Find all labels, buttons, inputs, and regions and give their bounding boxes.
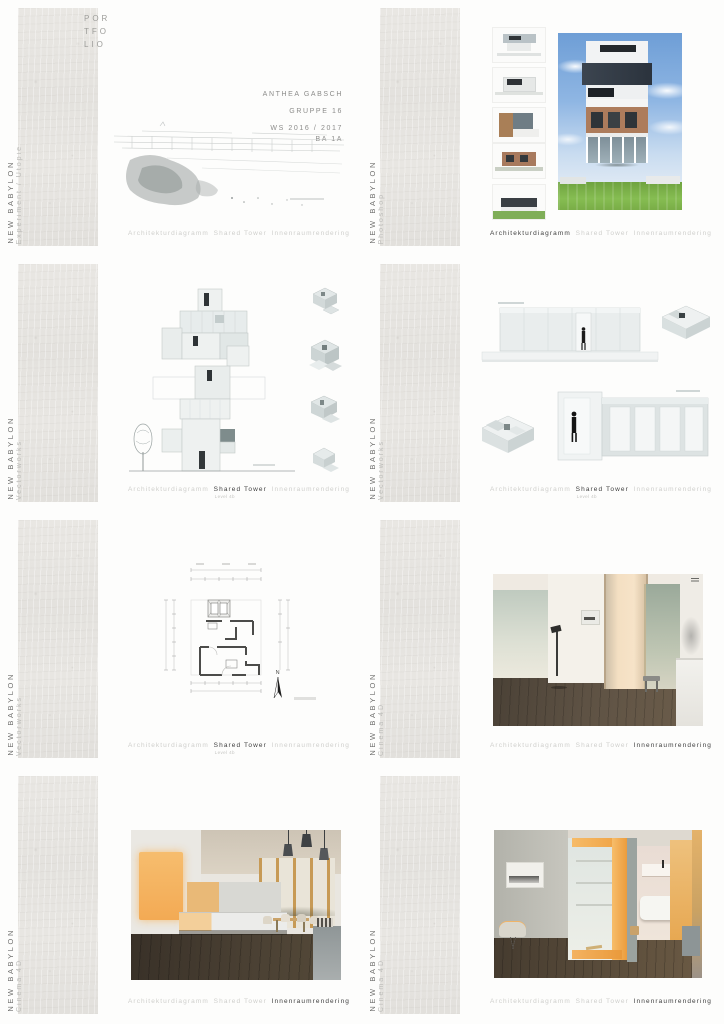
footer-tabs: Architekturdiagramm Shared TowerLevel 4b… — [490, 486, 712, 493]
tab-shared-tower[interactable]: Shared Tower — [576, 742, 629, 749]
low-wall-right — [646, 176, 680, 184]
project-title-vertical: NEW BABYLON — [368, 416, 377, 500]
thumb-grass — [493, 211, 545, 219]
interior-render-living — [493, 574, 703, 726]
tab-sublabel: Level 4b — [215, 494, 235, 499]
landscape-sketch — [112, 118, 347, 218]
concrete-strip — [18, 264, 98, 502]
project-title-vertical: NEW BABYLON — [6, 672, 15, 756]
concrete-strip — [380, 8, 460, 246]
project-title-vertical: NEW BABYLON — [368, 672, 377, 756]
isometric-diagram-4 — [313, 448, 339, 472]
tab-sublabel: Level 4b — [215, 750, 235, 755]
footer-tabs: Architekturdiagramm Shared Tower Innenra… — [128, 230, 350, 237]
door-panel-edge — [627, 838, 637, 962]
kitchen-cabinet — [187, 882, 281, 912]
thumb-window — [507, 79, 522, 85]
concrete-strip — [380, 520, 460, 758]
thumb-building — [501, 198, 537, 207]
concrete-strip — [18, 520, 98, 758]
panel-floorplan: NEW BABYLON Vectorworks — [0, 512, 362, 768]
thumb-window — [509, 36, 521, 40]
footer-tabs: Architekturdiagramm Shared Tower Innenra… — [490, 230, 712, 237]
thumbnail-4[interactable] — [492, 143, 546, 179]
group-label: GRUPPE 16 — [263, 107, 343, 117]
book-stack — [317, 918, 333, 927]
footer-tabs: Architekturdiagramm Shared Tower Innenra… — [490, 742, 712, 749]
panel-elevation: NEW BABYLON Vectorworks — [0, 256, 362, 512]
thumb-window — [520, 155, 528, 162]
door-frame-side — [612, 838, 627, 960]
elevator-core — [208, 600, 230, 617]
chapter-label-vertical: Experiment / Utopie — [16, 145, 23, 244]
thumbnail-3[interactable] — [492, 107, 546, 143]
lamp-cord — [306, 830, 307, 836]
portfolio-wordmark: POR TFO LIO — [84, 12, 110, 51]
floor-lamp — [556, 630, 558, 676]
project-title-vertical: NEW BABYLON — [368, 160, 377, 244]
tiny-annotation — [498, 302, 524, 304]
tool-label-vertical: Cinema 4D — [16, 959, 23, 1012]
chair — [263, 916, 272, 924]
tab-innenraumrendering[interactable]: Innenraumrendering — [272, 230, 350, 237]
panel-modules: NEW BABYLON Vectorworks — [362, 256, 724, 512]
panel-interior-3: NEW BABYLON Cinema 4D — [362, 768, 724, 1024]
photo-logo-mark — [691, 578, 699, 583]
tab-innenraumrendering[interactable]: Innenraumrendering — [272, 742, 350, 749]
wall-picture — [581, 610, 600, 625]
faucet — [662, 860, 664, 868]
dimension-lines — [164, 563, 290, 693]
tab-label: Shared Tower — [576, 486, 629, 493]
tab-innenraumrendering[interactable]: Innenraumrendering — [634, 998, 712, 1005]
tool-label-vertical: Cinema 4D — [378, 959, 385, 1012]
thumb-hedge — [495, 167, 543, 171]
isometric-diagram-column — [303, 278, 347, 484]
wordmark-line: POR — [84, 12, 110, 25]
brick-window — [608, 112, 620, 128]
tiny-annotation — [253, 464, 275, 466]
foreground-counter — [313, 926, 341, 980]
tab-innenraumrendering[interactable]: Innenraumrendering — [634, 742, 712, 749]
isometric-plan-top-right — [662, 306, 710, 339]
cabinet — [682, 926, 700, 956]
panel-photos: NEW BABYLON Photoshop — [362, 0, 724, 256]
tower-shadow — [588, 163, 646, 167]
tab-shared-tower[interactable]: Shared Tower — [576, 998, 629, 1005]
tool-label-vertical: Vectorworks — [16, 696, 23, 756]
author-name: ANTHEA GABSCH — [263, 90, 343, 100]
tree-icon — [134, 424, 152, 471]
tab-shared-tower[interactable]: Shared Tower — [214, 230, 267, 237]
stacked-boxes — [153, 289, 265, 471]
pendant-lamp — [283, 844, 293, 856]
lit-panel-right — [670, 840, 694, 940]
module-elevation-top — [482, 308, 658, 362]
figure-silhouette — [679, 614, 701, 658]
low-wall-left — [560, 177, 586, 184]
tab-label: Shared Tower — [214, 742, 267, 749]
wall-picture — [506, 862, 544, 888]
thumbnail-2[interactable] — [492, 67, 546, 103]
footer-tabs: Architekturdiagramm Shared TowerLevel 4b… — [128, 742, 350, 749]
tab-architekturdiagramm[interactable]: Architekturdiagramm — [490, 230, 571, 237]
rocky-shore — [126, 155, 303, 206]
interior-render-bath — [494, 830, 702, 978]
thumb-ground — [497, 53, 541, 56]
column-wall-lit — [604, 574, 648, 689]
thumb-wood-panel — [499, 113, 513, 137]
tower-photo — [558, 33, 682, 210]
tab-sublabel: Level 4b — [577, 494, 597, 499]
tiny-annotation — [676, 390, 700, 392]
tab-innenraumrendering[interactable]: Innenraumrendering — [634, 230, 712, 237]
footer-tabs: Architekturdiagramm Shared Tower Innenra… — [128, 998, 350, 1005]
floor-object — [551, 686, 567, 689]
stool-leg — [645, 681, 647, 692]
isometric-diagram-2 — [309, 340, 342, 371]
project-title-vertical: NEW BABYLON — [6, 928, 15, 1012]
door-frame-bottom — [572, 950, 622, 959]
tab-architekturdiagramm[interactable]: Architekturdiagramm — [128, 998, 209, 1005]
chair-legs — [502, 937, 524, 949]
thumb-deck — [501, 207, 537, 211]
counter-right — [676, 658, 703, 726]
module-views-drawing — [480, 298, 712, 478]
tool-label-vertical: Vectorworks — [378, 440, 385, 500]
plan-fixtures — [208, 623, 237, 675]
glass-shelf-line — [576, 882, 612, 884]
tab-architekturdiagramm[interactable]: Architekturdiagramm — [490, 998, 571, 1005]
tab-label: Shared Tower — [214, 486, 267, 493]
tab-architekturdiagramm[interactable]: Architekturdiagramm — [490, 486, 571, 493]
tower-glass-ground — [586, 137, 648, 163]
brick-window — [625, 112, 637, 128]
isometric-diagram-1 — [313, 288, 339, 314]
lawn — [558, 182, 682, 210]
tab-shared-tower[interactable]: Shared TowerLevel 4b — [214, 742, 267, 749]
tab-shared-tower[interactable]: Shared TowerLevel 4b — [214, 486, 267, 493]
stool — [630, 926, 639, 935]
tab-shared-tower[interactable]: Shared TowerLevel 4b — [576, 486, 629, 493]
wordmark-line: LIO — [84, 38, 110, 51]
footer-tabs: Architekturdiagramm Shared TowerLevel 4b… — [128, 486, 350, 493]
north-arrow-icon: N — [274, 670, 282, 698]
thumbnail-1[interactable] — [492, 27, 546, 63]
window-left — [493, 590, 551, 678]
tab-architekturdiagramm[interactable]: Architekturdiagramm — [490, 742, 571, 749]
chair — [281, 914, 290, 922]
north-label: N — [276, 670, 280, 676]
pendant-lamp — [319, 848, 329, 860]
panel-cover: NEW BABYLON Experiment / Utopie POR TFO … — [0, 0, 362, 256]
tool-label-vertical: Cinema 4D — [378, 703, 385, 756]
counter-shadow — [179, 930, 287, 935]
picture-art — [509, 876, 539, 883]
glass-shelf-line — [576, 904, 612, 906]
tab-innenraumrendering[interactable]: Innenraumrendering — [634, 486, 712, 493]
lamp-cord — [288, 830, 289, 845]
tower-elevation-drawing — [125, 281, 305, 476]
tab-architekturdiagramm[interactable]: Architekturdiagramm — [128, 486, 209, 493]
glass-shelf-line — [576, 860, 612, 862]
brick-window — [591, 112, 603, 128]
module-elevation-bottom — [558, 390, 708, 460]
tab-architekturdiagramm[interactable]: Architekturdiagramm — [128, 742, 209, 749]
project-title-vertical: NEW BABYLON — [6, 416, 15, 500]
lamp-cord — [324, 830, 325, 849]
picture-art — [584, 617, 595, 620]
floor-plan-drawing: N — [148, 557, 318, 717]
chair — [297, 914, 306, 922]
concrete-strip — [380, 264, 460, 502]
tower-window-strip — [600, 45, 636, 52]
shell-chair — [499, 922, 526, 937]
concrete-strip — [18, 776, 98, 1014]
interior-render-dining — [131, 830, 341, 980]
thumb-wall — [513, 129, 539, 137]
project-title-vertical: NEW BABYLON — [6, 160, 15, 244]
stool-leg — [656, 681, 658, 692]
tab-shared-tower[interactable]: Shared Tower — [214, 998, 267, 1005]
tab-innenraumrendering[interactable]: Innenraumrendering — [272, 486, 350, 493]
thumbnail-5[interactable] — [492, 184, 546, 220]
thumb-window — [506, 155, 514, 162]
isometric-plan-bottom-left — [482, 416, 534, 453]
project-title-vertical: NEW BABYLON — [368, 928, 377, 1012]
footer-tabs: Architekturdiagramm Shared Tower Innenra… — [490, 998, 712, 1005]
thumb-base — [507, 43, 531, 51]
tab-architekturdiagramm[interactable]: Architekturdiagramm — [128, 230, 209, 237]
tab-shared-tower[interactable]: Shared Tower — [576, 230, 629, 237]
portfolio-sheet: NEW BABYLON Experiment / Utopie POR TFO … — [0, 0, 724, 1024]
panel-interior-1: NEW BABYLON Cinema 4D Architekturdiagram… — [362, 512, 724, 768]
tool-label-vertical: Photoshop — [378, 193, 385, 244]
tool-label-vertical: Vectorworks — [16, 440, 23, 500]
isometric-diagram-3 — [311, 396, 340, 423]
tower-windows-black — [588, 88, 614, 97]
sketch-caption-mark — [290, 198, 324, 200]
table-leg — [276, 920, 278, 932]
tower-band-dark — [582, 63, 652, 85]
tiny-annotation — [294, 697, 316, 700]
concrete-strip — [380, 776, 460, 1014]
sunlight-patch — [139, 852, 183, 920]
panel-interior-2: NEW BABYLON Cinema 4D — [0, 768, 362, 1024]
wordmark-line: TFO — [84, 25, 110, 38]
thumb-ground — [495, 92, 543, 95]
wood-floor — [131, 934, 341, 980]
thumb-glass — [513, 113, 533, 129]
tab-innenraumrendering[interactable]: Innenraumrendering — [272, 998, 350, 1005]
